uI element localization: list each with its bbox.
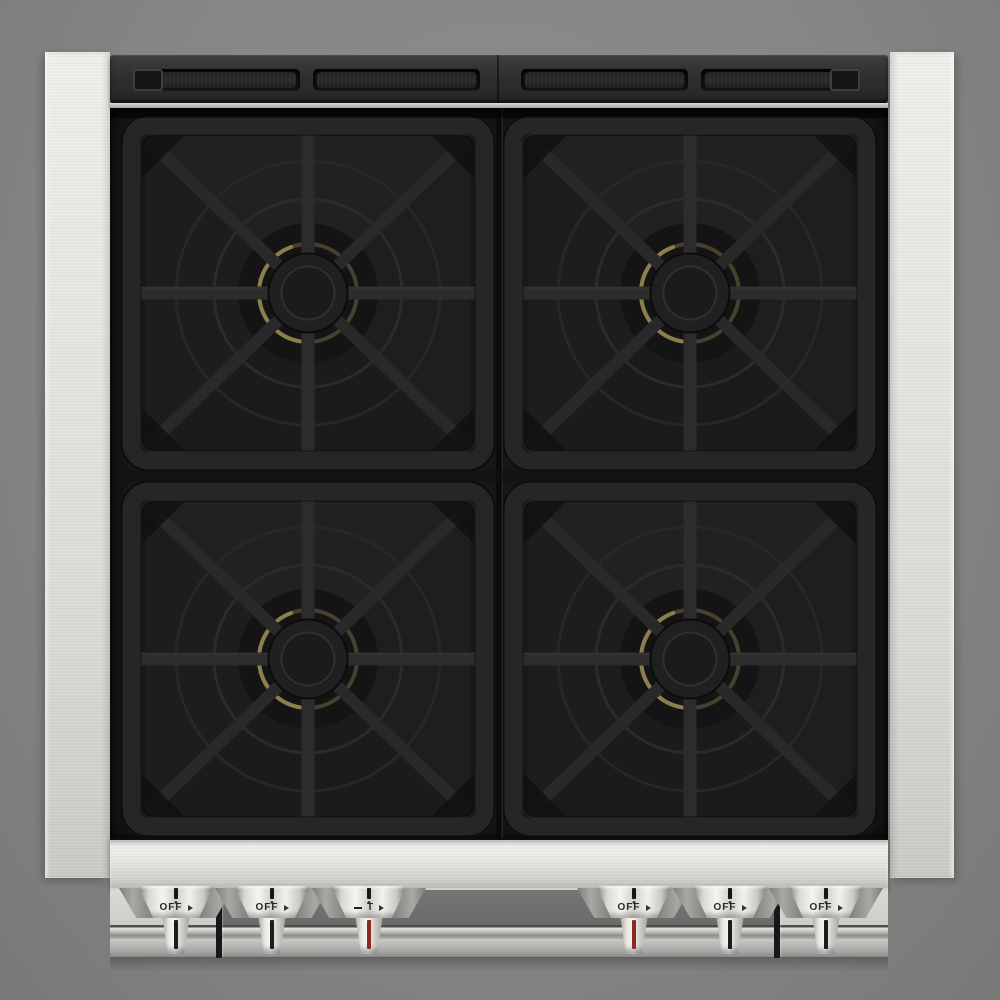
flame-high-icon <box>646 905 651 911</box>
flame-high-icon <box>742 905 747 911</box>
knob-indicator-line <box>632 920 636 949</box>
flame-high-icon <box>838 905 843 911</box>
knob-pointer-tick-icon <box>824 888 828 899</box>
knob-indicator-line <box>174 920 178 949</box>
burner-knob-1[interactable]: OFF <box>130 886 222 958</box>
grate-top-right <box>504 116 876 470</box>
vent-slot-3 <box>521 69 688 91</box>
knob-stem[interactable] <box>809 917 843 954</box>
knob-pointer-tick-icon <box>174 888 178 899</box>
vent-slot-2-grille <box>317 72 476 88</box>
grate-bottom-right <box>504 482 876 836</box>
knob-pointer-tick-icon <box>367 888 371 899</box>
knob-stem[interactable] <box>159 917 193 954</box>
temp-high-mark-icon <box>379 905 384 911</box>
grate-top-left <box>122 116 494 470</box>
vent-panel-seam <box>497 55 499 103</box>
burner-knob-4[interactable]: OFF <box>588 886 680 958</box>
vent-end-cap-right <box>830 69 860 91</box>
knob-label: OFF <box>256 903 279 913</box>
knob-indicator-line <box>824 920 828 949</box>
control-panel: OFF OFF <box>110 890 888 958</box>
left-stainless-trim-panel <box>45 52 110 878</box>
cooktop-surface <box>110 108 888 838</box>
knob-stem[interactable] <box>713 917 747 954</box>
knob-indicator-line <box>728 920 732 949</box>
knob-label: OFF <box>810 903 833 913</box>
knob-label: OFF <box>714 903 737 913</box>
knob-pointer-tick-icon <box>632 888 636 899</box>
flame-high-icon <box>188 905 193 911</box>
burner-knob-6[interactable]: OFF <box>780 886 872 958</box>
knob-indicator-line <box>270 920 274 949</box>
vent-slot-3-grille <box>525 72 684 88</box>
front-stainless-ledge <box>110 838 888 890</box>
right-stainless-trim-panel <box>890 52 954 878</box>
cooktop-middle-seam <box>122 470 876 482</box>
burner-grates-graphic <box>110 108 888 838</box>
vent-slot-2 <box>313 69 480 91</box>
grate-bottom-left <box>122 482 494 836</box>
knob-label: T <box>367 903 374 913</box>
temp-low-mark-icon <box>354 907 362 909</box>
knob-stem[interactable] <box>352 917 386 954</box>
knob-stem[interactable] <box>255 917 289 954</box>
flame-high-icon <box>284 905 289 911</box>
knob-label: OFF <box>618 903 641 913</box>
rear-vent-panel <box>110 55 888 103</box>
burner-knob-5[interactable]: OFF <box>684 886 776 958</box>
drop-shadow <box>110 958 888 972</box>
knob-indicator-line <box>367 920 371 949</box>
range-product-image: OFF OFF <box>0 0 1000 1000</box>
knob-pointer-tick-icon <box>270 888 274 899</box>
knob-stem[interactable] <box>617 917 651 954</box>
vent-end-cap-left <box>133 69 163 91</box>
burner-knob-2[interactable]: OFF <box>226 886 318 958</box>
knob-label: OFF <box>160 903 183 913</box>
oven-temp-knob[interactable]: T <box>323 886 415 958</box>
knob-pointer-tick-icon <box>728 888 732 899</box>
